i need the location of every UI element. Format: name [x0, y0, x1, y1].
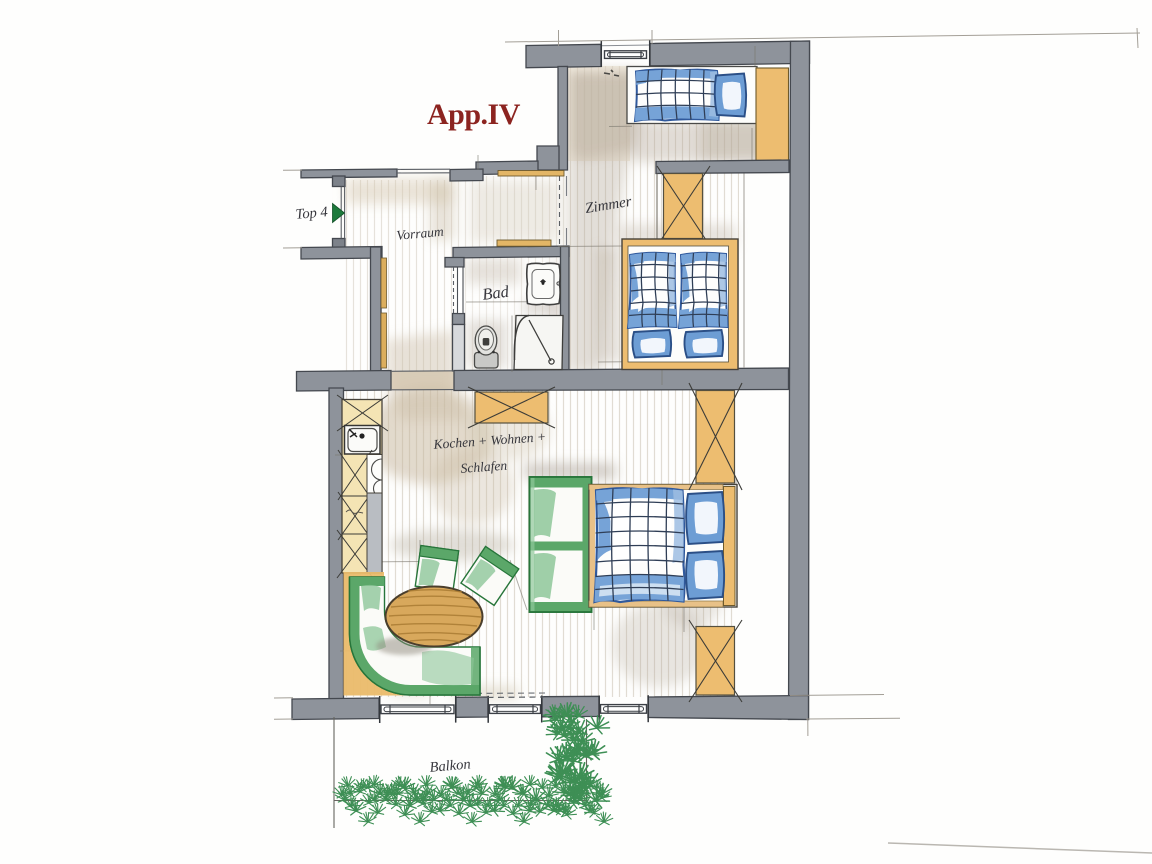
- svg-text:App.IV: App.IV: [427, 98, 521, 131]
- svg-text:Bad: Bad: [481, 282, 510, 304]
- svg-text:Top 4: Top 4: [295, 204, 328, 223]
